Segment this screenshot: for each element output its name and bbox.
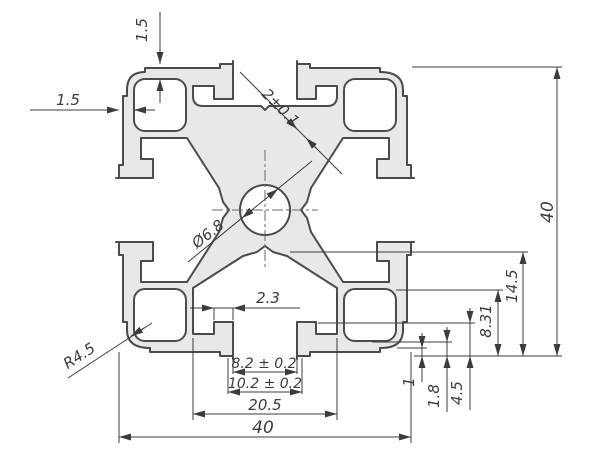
dim-lip-offset-label: 2.3 bbox=[256, 289, 280, 307]
dim-lip-height: 4.5 bbox=[318, 308, 475, 410]
dim-corner-radius-label: R4.5 bbox=[60, 339, 99, 373]
dim-corner-radius: R4.5 bbox=[60, 323, 152, 378]
dim-slot-chamfer-width-label: 10.2 ± 0.2 bbox=[228, 376, 302, 392]
dim-corner-step-label: 1 bbox=[400, 377, 418, 387]
dim-lip-height-label: 4.5 bbox=[448, 381, 466, 405]
profile-drawing: 40 40 20.5 10.2 ± 0.2 8.2 ± 0.2 2.3 bbox=[0, 0, 600, 450]
dim-slot-opening: 8.2 ± 0.2 bbox=[231, 356, 297, 374]
corner-chamber-top-right bbox=[344, 79, 396, 131]
dim-side-wall-label: 1.5 bbox=[56, 91, 80, 109]
dim-slot-opening-label: 8.2 ± 0.2 bbox=[231, 356, 296, 372]
dim-bottom-wall-label: 1.8 bbox=[425, 384, 443, 408]
corner-chamber-bottom-left bbox=[134, 289, 186, 341]
dim-overall-height-label: 40 bbox=[538, 201, 558, 223]
dim-chamber-height-label: 8.31 bbox=[477, 304, 495, 337]
drawing-canvas: 40 40 20.5 10.2 ± 0.2 8.2 ± 0.2 2.3 bbox=[0, 0, 600, 450]
dim-corner-step: 1 bbox=[397, 333, 427, 387]
dim-slot-cavity-width-label: 20.5 bbox=[248, 396, 281, 414]
corner-chamber-bottom-right bbox=[344, 289, 396, 341]
dim-slot-depth-label: 14.5 bbox=[503, 269, 521, 302]
dim-top-wall-label: 1.5 bbox=[133, 18, 151, 42]
dim-overall-width-label: 40 bbox=[252, 418, 274, 438]
